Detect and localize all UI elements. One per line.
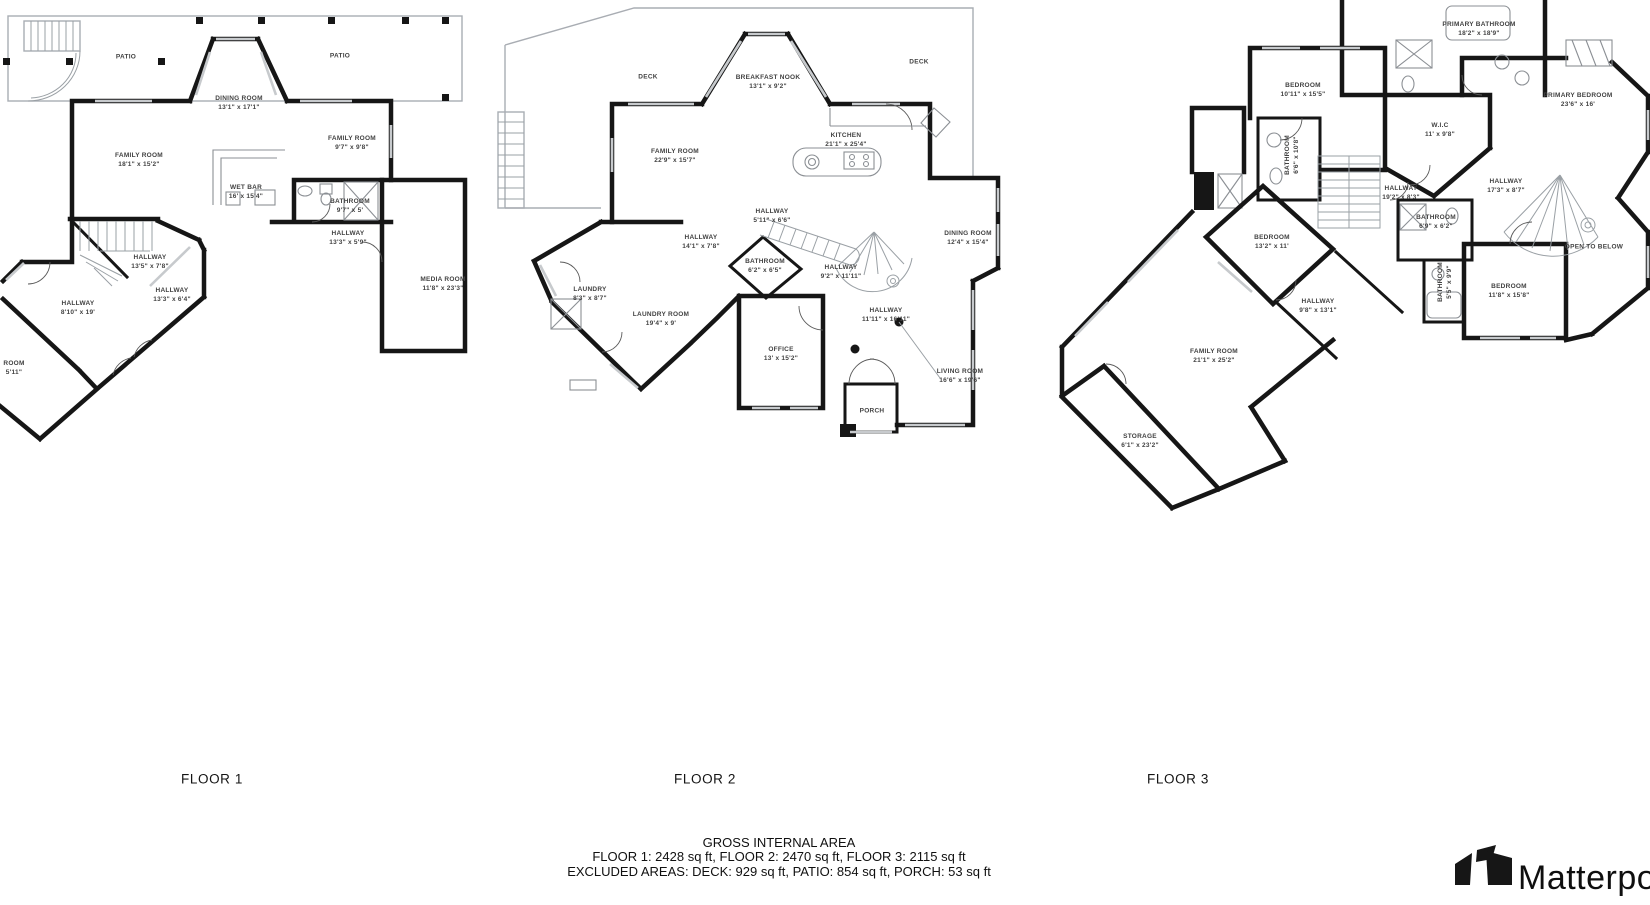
- matterport-wordmark: Matterport: [1518, 859, 1650, 898]
- floor-2-walls: [498, 8, 998, 437]
- area-summary: GROSS INTERNAL AREA FLOOR 1: 2428 sq ft,…: [567, 836, 991, 879]
- wet-bar-counter-icon: [213, 150, 285, 205]
- matterport-logo: Matterport: [1452, 845, 1650, 905]
- curved-stairs-icon: [836, 232, 912, 292]
- floor-3-caption: FLOOR 3: [1147, 772, 1209, 787]
- floor-3-walls: [1062, 0, 1648, 508]
- stairs-icon: [80, 221, 152, 286]
- stairs-icon: [760, 219, 859, 265]
- matterport-logo-icon: [1452, 845, 1516, 885]
- floorplan-drawing: [0, 0, 1650, 877]
- deck-stairs-icon: [498, 122, 524, 199]
- floor-1-walls: [0, 16, 465, 439]
- column-marker: [851, 345, 860, 354]
- kitchen-island-icon: [793, 108, 950, 176]
- area-summary-title: GROSS INTERNAL AREA: [567, 836, 991, 850]
- bathroom-fixtures-icon: [298, 182, 378, 220]
- area-summary-floors: FLOOR 1: 2428 sq ft, FLOOR 2: 2470 sq ft…: [567, 850, 991, 864]
- fireplace-icon: [1566, 40, 1612, 66]
- patio-posts: [3, 17, 449, 101]
- floor-1-caption: FLOOR 1: [181, 772, 243, 787]
- stairs-icon: [1318, 156, 1380, 228]
- floorplan-page: { "floors": [ { "id": "floor-1", "captio…: [0, 0, 1650, 877]
- floor-2-caption: FLOOR 2: [674, 772, 736, 787]
- media-room-walls: [382, 180, 465, 351]
- office-walls: [739, 296, 823, 408]
- laundry-fixtures-icon: [551, 299, 596, 390]
